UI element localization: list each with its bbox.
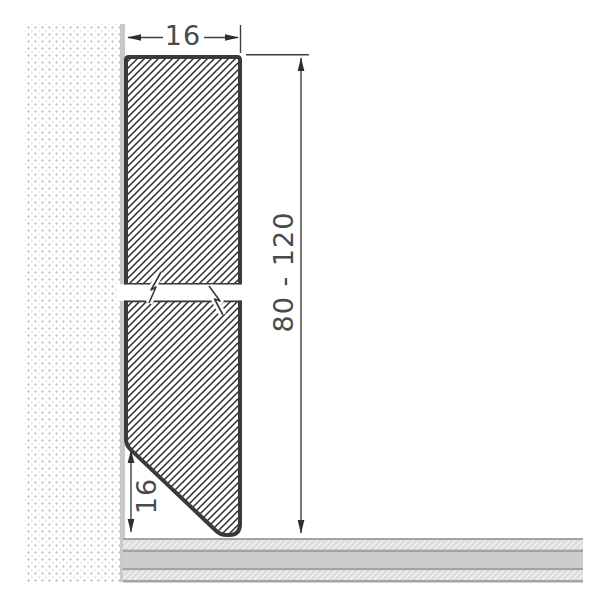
technical-drawing: [0, 0, 604, 604]
floor-border-top: [123, 538, 583, 540]
arrow-right-icon: [225, 34, 239, 41]
arrow-down-icon-bevel: [128, 519, 135, 533]
arrow-down-icon: [298, 520, 305, 534]
floor-border-mid1: [123, 550, 583, 553]
dim-label-height-range: 80 - 120: [270, 212, 297, 333]
arrow-up-icon: [298, 58, 305, 72]
drawing-canvas: 16 80 - 120 16: [0, 0, 604, 604]
floor-hatch-band-upper: [123, 540, 583, 549]
arrow-left-icon: [127, 34, 141, 41]
floor-border-mid2: [123, 568, 583, 571]
floor-plain-band: [123, 552, 583, 568]
floor-border-bottom: [123, 580, 583, 583]
dim-label-bottom-bevel: 16: [133, 478, 160, 514]
skirting-profile: [118, 57, 248, 535]
break-gap: [118, 284, 248, 301]
dim-label-top-width: 16: [165, 22, 201, 49]
floor-hatch-band-lower: [123, 571, 583, 581]
floor-section: [123, 538, 583, 583]
